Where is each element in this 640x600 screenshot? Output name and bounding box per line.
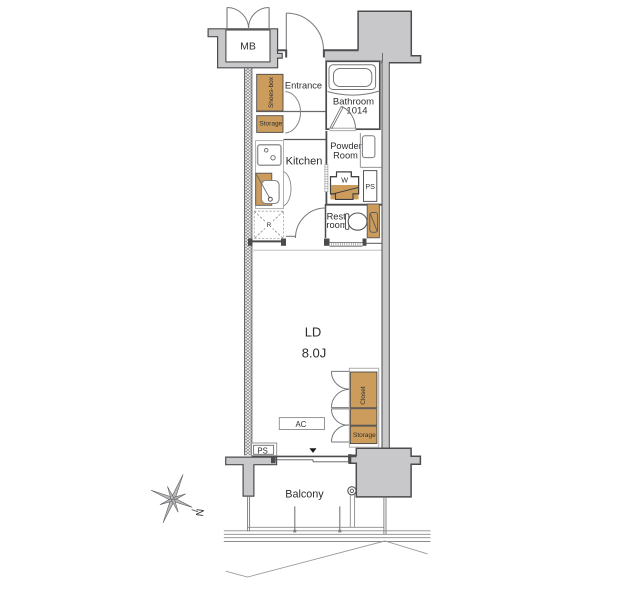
svg-text:PS: PS — [257, 447, 267, 456]
svg-text:Powder: Powder — [330, 141, 362, 151]
svg-text:Shoes-box: Shoes-box — [268, 76, 275, 108]
svg-text:Entrance: Entrance — [285, 80, 322, 90]
svg-text:Storage: Storage — [259, 120, 282, 127]
svg-text:Kitchen: Kitchen — [286, 156, 323, 168]
svg-text:MB: MB — [240, 41, 256, 53]
svg-text:8.0J: 8.0J — [302, 345, 327, 360]
svg-text:Storage: Storage — [353, 432, 376, 439]
svg-text:AC: AC — [295, 420, 306, 429]
svg-text:Balcony: Balcony — [285, 488, 324, 500]
svg-text:room: room — [326, 220, 347, 230]
svg-text:W: W — [341, 176, 348, 185]
svg-text:Closet: Closet — [360, 386, 367, 405]
svg-text:LD: LD — [305, 324, 322, 339]
svg-text:R: R — [267, 222, 272, 229]
svg-text:N: N — [193, 508, 206, 517]
svg-text:1014: 1014 — [346, 105, 367, 116]
svg-text:PS: PS — [365, 182, 375, 191]
svg-text:Room: Room — [333, 150, 358, 160]
